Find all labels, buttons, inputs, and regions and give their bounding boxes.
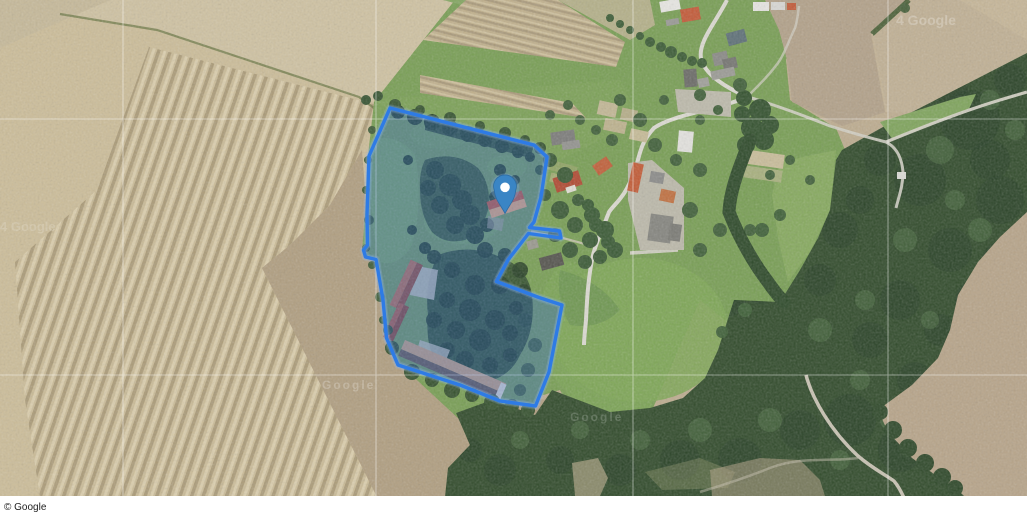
svg-text:4 Google: 4 Google — [0, 219, 56, 234]
svg-text:Google: Google — [570, 410, 623, 424]
svg-text:Google: Google — [322, 378, 375, 392]
svg-text:© Google: © Google — [4, 502, 47, 513]
svg-text:4 Google: 4 Google — [896, 12, 956, 28]
